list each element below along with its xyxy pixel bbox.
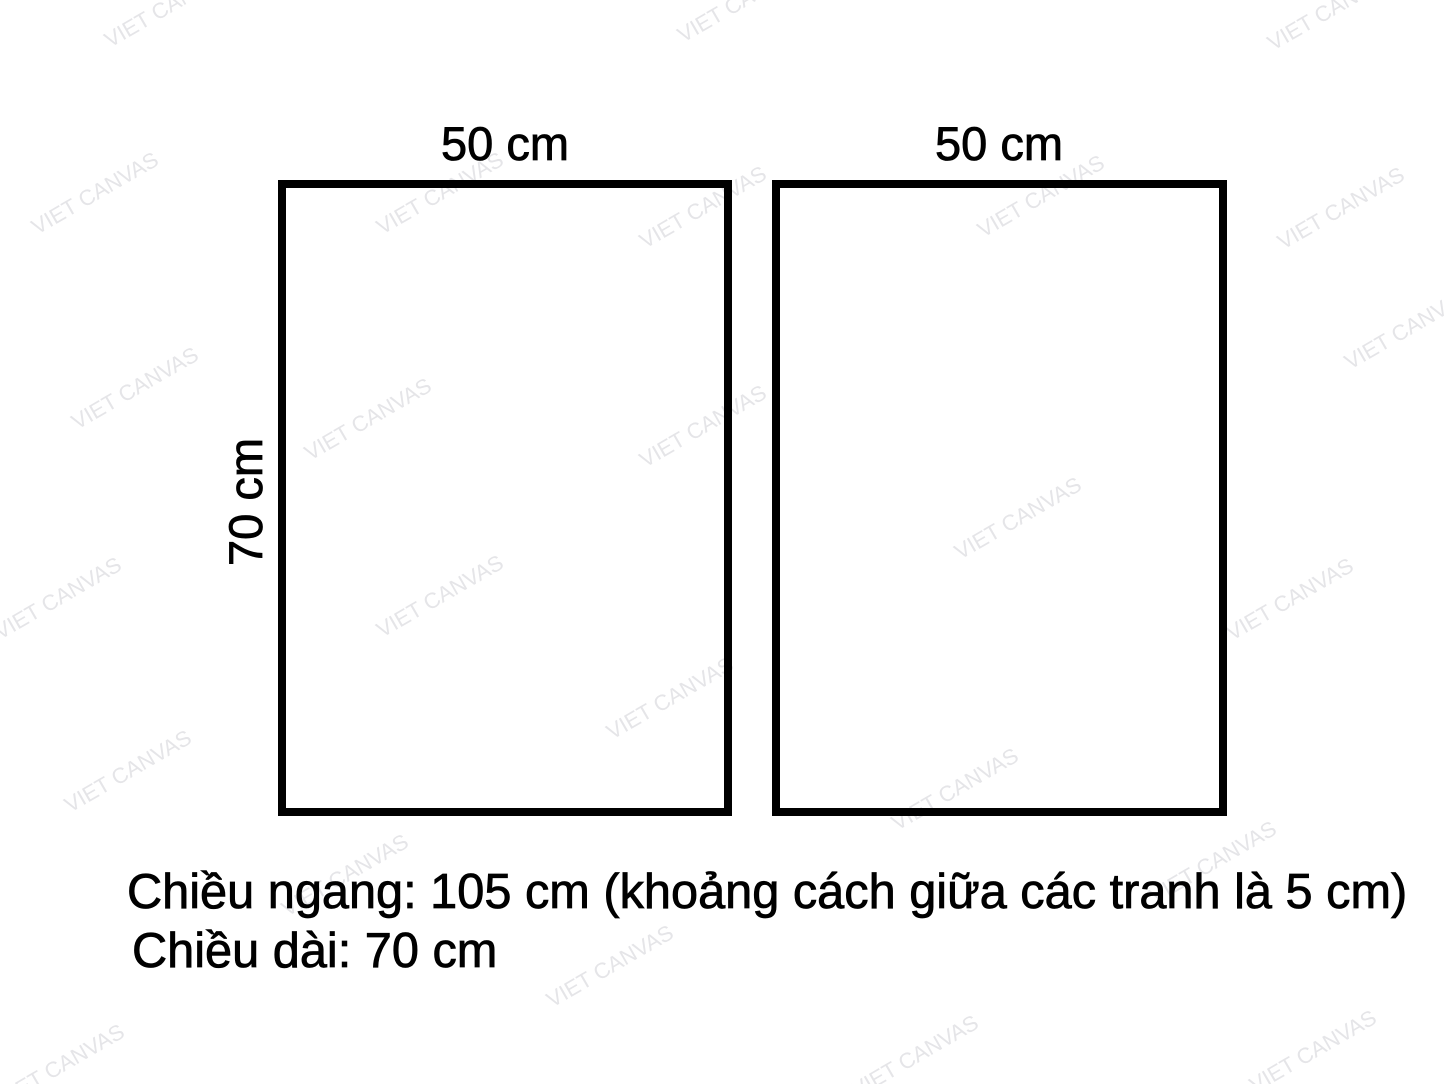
svg-text:50 cm: 50 cm [935,117,1063,170]
svg-text:70 cm: 70 cm [219,438,272,566]
svg-text:Chiều ngang: 105 cm (khoảng cá: Chiều ngang: 105 cm (khoảng cách giữa cá… [127,865,1407,919]
svg-text:50 cm: 50 cm [441,117,569,170]
svg-text:Chiều dài: 70 cm: Chiều dài: 70 cm [132,924,497,978]
